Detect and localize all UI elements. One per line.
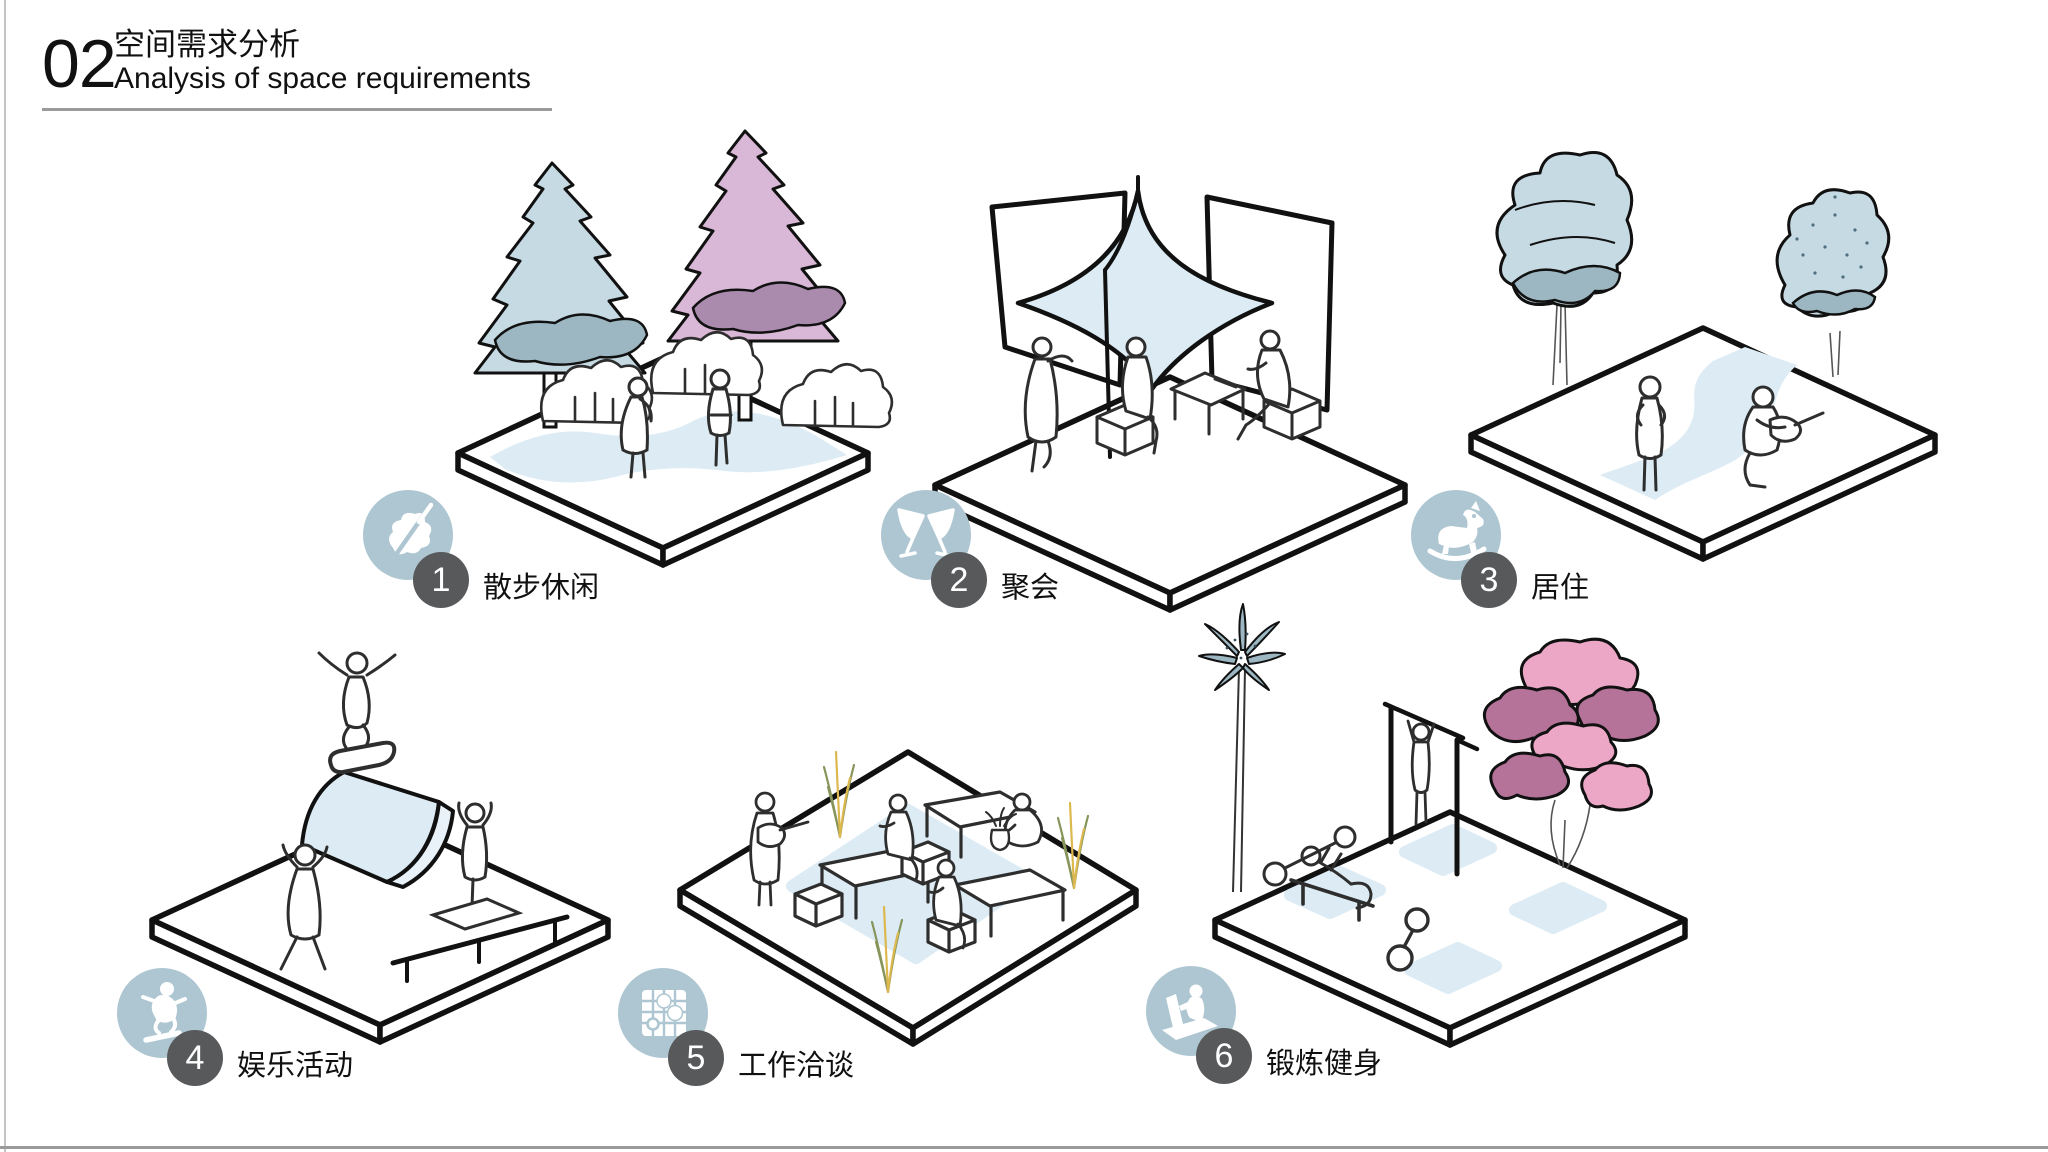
page-left-border bbox=[4, 0, 6, 1152]
scene-fitness-illustration bbox=[1195, 590, 1765, 1085]
scene-label: 聚会 bbox=[1001, 564, 1059, 606]
scene-tag-walking-leisure: 1 散步休闲 bbox=[363, 490, 453, 580]
page-title-en: Analysis of space requirements bbox=[114, 62, 531, 95]
scene-tag-fitness: 6 锻炼健身 bbox=[1146, 966, 1236, 1056]
header-underline bbox=[42, 108, 552, 111]
scene-number: 3 bbox=[1480, 561, 1499, 600]
scene-number: 2 bbox=[950, 561, 969, 600]
scene-living-illustration bbox=[1445, 135, 1990, 595]
page-header: 02 空间需求分析 Analysis of space requirements bbox=[40, 0, 600, 120]
scene-tag-work: 5 工作洽谈 bbox=[618, 968, 708, 1058]
scene-number: 1 bbox=[432, 561, 451, 600]
scene-number-badge: 3 bbox=[1461, 552, 1517, 608]
scene-work-illustration bbox=[670, 730, 1170, 1085]
scene-number: 4 bbox=[186, 1039, 205, 1078]
scene-number: 6 bbox=[1215, 1037, 1234, 1076]
scene-number-badge: 2 bbox=[931, 552, 987, 608]
scene-label: 散步休闲 bbox=[483, 564, 599, 606]
page-bottom-border bbox=[0, 1146, 2048, 1149]
scene-walking-leisure-illustration bbox=[395, 125, 925, 595]
palm-tree bbox=[1199, 604, 1285, 892]
scene-number-badge: 5 bbox=[668, 1030, 724, 1086]
tree-blue-round-1 bbox=[1497, 153, 1632, 386]
hanging-figure bbox=[1408, 721, 1434, 824]
scene-gathering-illustration bbox=[920, 175, 1450, 615]
scene-tag-entertainment: 4 娱乐活动 bbox=[117, 968, 207, 1058]
scene-number-badge: 1 bbox=[413, 552, 469, 608]
page-title-zh: 空间需求分析 bbox=[114, 28, 300, 62]
tree-blue-round-2 bbox=[1777, 190, 1889, 377]
scene-entertainment-illustration bbox=[135, 615, 645, 1080]
section-number: 02 bbox=[42, 30, 116, 98]
scene-label: 工作洽谈 bbox=[738, 1042, 854, 1084]
scene-number-badge: 4 bbox=[167, 1030, 223, 1086]
pink-tree bbox=[1484, 639, 1658, 868]
scene-tag-gathering: 2 聚会 bbox=[881, 490, 971, 580]
scene-number-badge: 6 bbox=[1196, 1028, 1252, 1084]
scene-label: 居住 bbox=[1531, 564, 1589, 606]
scene-label: 娱乐活动 bbox=[237, 1042, 353, 1084]
scene-tag-living: 3 居住 bbox=[1411, 490, 1501, 580]
scene-label: 锻炼健身 bbox=[1266, 1040, 1382, 1082]
scene-number: 5 bbox=[687, 1039, 706, 1078]
